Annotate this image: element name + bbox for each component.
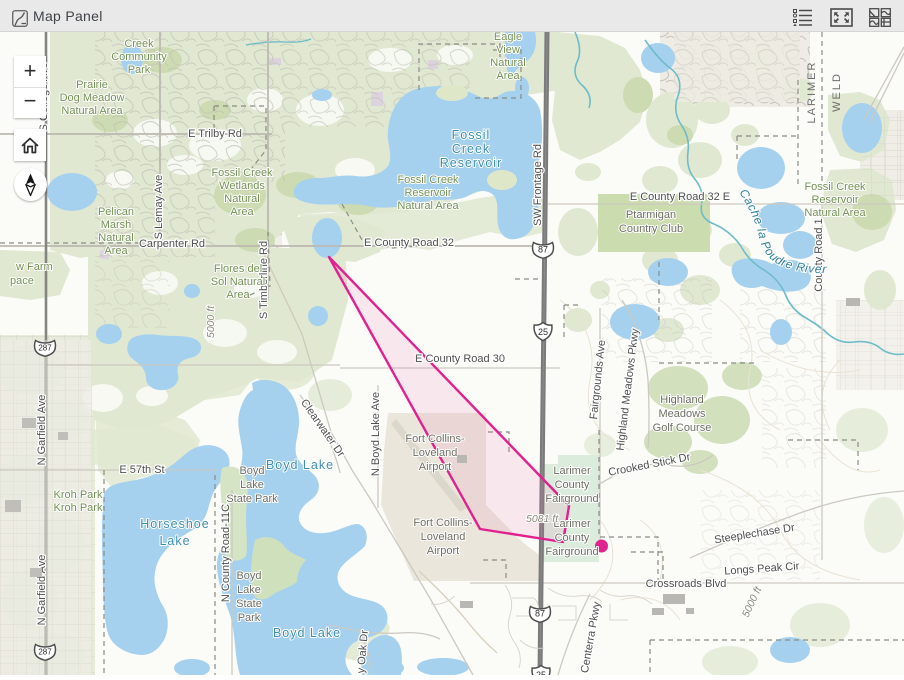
svg-text:Natural Area: Natural Area <box>804 207 866 219</box>
svg-text:Larimer: Larimer <box>553 518 591 530</box>
svg-text:SW Frontage Rd: SW Frontage Rd <box>532 144 544 226</box>
svg-text:Fort Collins-: Fort Collins- <box>413 517 473 529</box>
svg-text:Prairie: Prairie <box>76 79 108 91</box>
svg-text:S Lemay Ave: S Lemay Ave <box>153 175 165 240</box>
svg-text:Loveland: Loveland <box>413 447 458 459</box>
svg-text:Dog Meadow: Dog Meadow <box>60 92 125 104</box>
svg-text:Creek: Creek <box>452 142 490 156</box>
svg-text:Reservoir: Reservoir <box>440 156 503 170</box>
svg-text:Sol Natural: Sol Natural <box>211 276 265 288</box>
svg-text:Fairground: Fairground <box>545 493 598 505</box>
svg-text:Marsh: Marsh <box>101 219 132 231</box>
svg-text:View: View <box>496 44 520 56</box>
svg-text:State Park: State Park <box>226 493 278 505</box>
svg-text:Kroh Park: Kroh Park <box>54 489 103 501</box>
svg-text:Natural Area: Natural Area <box>397 200 459 212</box>
svg-text:5081 ft: 5081 ft <box>526 513 559 525</box>
svg-text:Kroh Park: Kroh Park <box>54 502 103 514</box>
svg-text:87: 87 <box>538 245 548 255</box>
svg-text:Ptarmigan: Ptarmigan <box>626 209 676 221</box>
svg-text:Natural: Natural <box>490 57 525 69</box>
svg-text:287: 287 <box>38 344 52 353</box>
svg-text:Community: Community <box>111 51 167 63</box>
svg-text:Meadows: Meadows <box>658 408 706 420</box>
svg-text:N Boyd Lake Ave: N Boyd Lake Ave <box>370 392 382 476</box>
svg-text:Reservoir: Reservoir <box>811 194 858 206</box>
svg-text:E County Road 30: E County Road 30 <box>415 353 505 365</box>
svg-text:Boyd: Boyd <box>239 465 264 477</box>
svg-text:Crossroads Blvd: Crossroads Blvd <box>646 578 727 590</box>
svg-text:Wetlands: Wetlands <box>219 180 265 192</box>
svg-text:pace: pace <box>10 275 34 287</box>
svg-text:Area: Area <box>230 206 254 218</box>
svg-text:Airport: Airport <box>419 461 451 473</box>
svg-text:County Road 1: County Road 1 <box>813 218 825 291</box>
svg-text:Lake: Lake <box>240 479 264 491</box>
svg-text:State: State <box>236 598 262 610</box>
svg-text:Fossil: Fossil <box>452 128 491 142</box>
svg-text:Boyd Lake: Boyd Lake <box>266 458 334 472</box>
svg-text:Larimer: Larimer <box>553 465 591 477</box>
svg-text:Carpenter Rd: Carpenter Rd <box>139 238 205 250</box>
svg-text:Fossil Creek: Fossil Creek <box>211 167 273 179</box>
svg-text:Eagle: Eagle <box>494 32 522 43</box>
svg-text:Fossil Creek: Fossil Creek <box>804 181 866 193</box>
svg-text:N Garfield Ave: N Garfield Ave <box>36 395 48 466</box>
svg-text:Golf Course: Golf Course <box>653 422 712 434</box>
svg-text:Highland: Highland <box>660 394 703 406</box>
svg-text:Fairground: Fairground <box>545 546 598 558</box>
svg-text:Loveland: Loveland <box>421 531 466 543</box>
svg-text:Natural: Natural <box>224 193 259 205</box>
svg-text:Horseshoe: Horseshoe <box>140 517 209 531</box>
svg-text:Area: Area <box>104 245 128 257</box>
svg-text:Lake: Lake <box>159 534 190 548</box>
svg-text:N Garfield Ave: N Garfield Ave <box>36 555 48 626</box>
svg-text:Airport: Airport <box>427 545 459 557</box>
svg-text:Pelican: Pelican <box>98 206 134 218</box>
svg-text:Natural: Natural <box>98 232 133 244</box>
svg-text:Area: Area <box>226 289 250 301</box>
svg-text:County: County <box>555 532 590 544</box>
svg-text:25: 25 <box>536 670 546 675</box>
svg-text:Park: Park <box>128 64 151 76</box>
svg-text:Reservoir: Reservoir <box>404 187 451 199</box>
svg-text:25: 25 <box>538 327 548 337</box>
svg-text:Lake: Lake <box>237 584 261 596</box>
svg-text:E County Road 32: E County Road 32 <box>364 237 454 249</box>
svg-text:87: 87 <box>535 609 545 619</box>
svg-text:WELD: WELD <box>831 72 843 112</box>
svg-text:Creek: Creek <box>124 38 154 50</box>
svg-text:Area: Area <box>496 70 520 82</box>
svg-text:287: 287 <box>38 648 52 657</box>
svg-text:E Trilby Rd: E Trilby Rd <box>188 128 242 140</box>
svg-text:N County Road-11C: N County Road-11C <box>220 504 232 602</box>
svg-text:Fort Collins-: Fort Collins- <box>405 433 465 445</box>
svg-text:w Farm: w Farm <box>15 261 53 273</box>
svg-text:5000 ft: 5000 ft <box>205 305 217 338</box>
svg-text:Fossil Creek: Fossil Creek <box>397 174 459 186</box>
svg-text:Boyd Lake: Boyd Lake <box>273 626 341 640</box>
svg-text:E County Road 32 E: E County Road 32 E <box>630 191 730 203</box>
svg-text:Flores del: Flores del <box>214 263 262 275</box>
svg-text:Country Club: Country Club <box>619 223 683 235</box>
svg-text:E 57th St: E 57th St <box>119 464 164 476</box>
svg-text:Park: Park <box>238 612 261 624</box>
svg-text:LARIMER: LARIMER <box>806 61 818 124</box>
svg-text:Natural Area: Natural Area <box>61 105 123 117</box>
svg-text:County: County <box>555 479 590 491</box>
svg-text:Boyd: Boyd <box>236 570 261 582</box>
